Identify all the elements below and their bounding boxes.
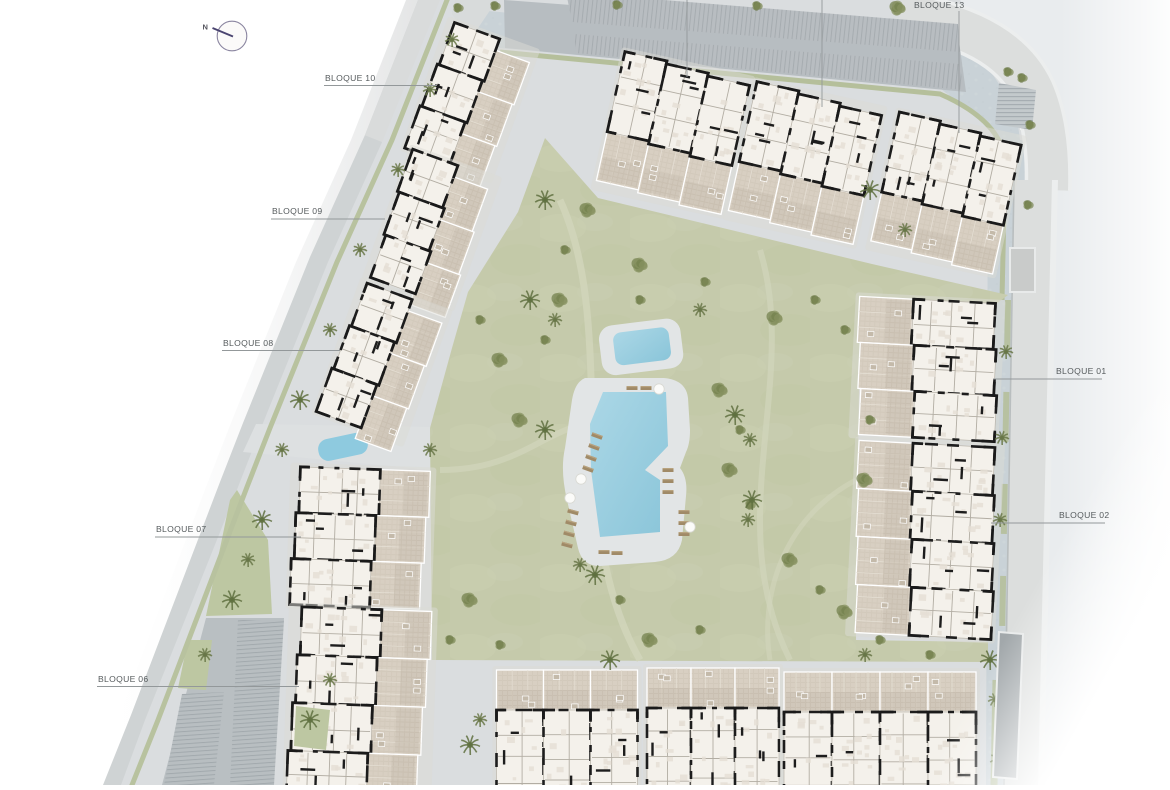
svg-text:BLOQUE 06: BLOQUE 06 xyxy=(98,674,148,684)
svg-text:BLOQUE 09: BLOQUE 09 xyxy=(272,206,322,216)
svg-text:BLOQUE 13: BLOQUE 13 xyxy=(914,0,964,10)
svg-text:BLOQUE 10: BLOQUE 10 xyxy=(325,73,375,83)
svg-text:N: N xyxy=(203,23,208,32)
svg-text:BLOQUE 02: BLOQUE 02 xyxy=(1059,510,1109,520)
svg-text:BLOQUE 01: BLOQUE 01 xyxy=(1056,366,1106,376)
svg-text:BLOQUE 07: BLOQUE 07 xyxy=(156,524,206,534)
svg-text:BLOQUE 08: BLOQUE 08 xyxy=(223,338,273,348)
